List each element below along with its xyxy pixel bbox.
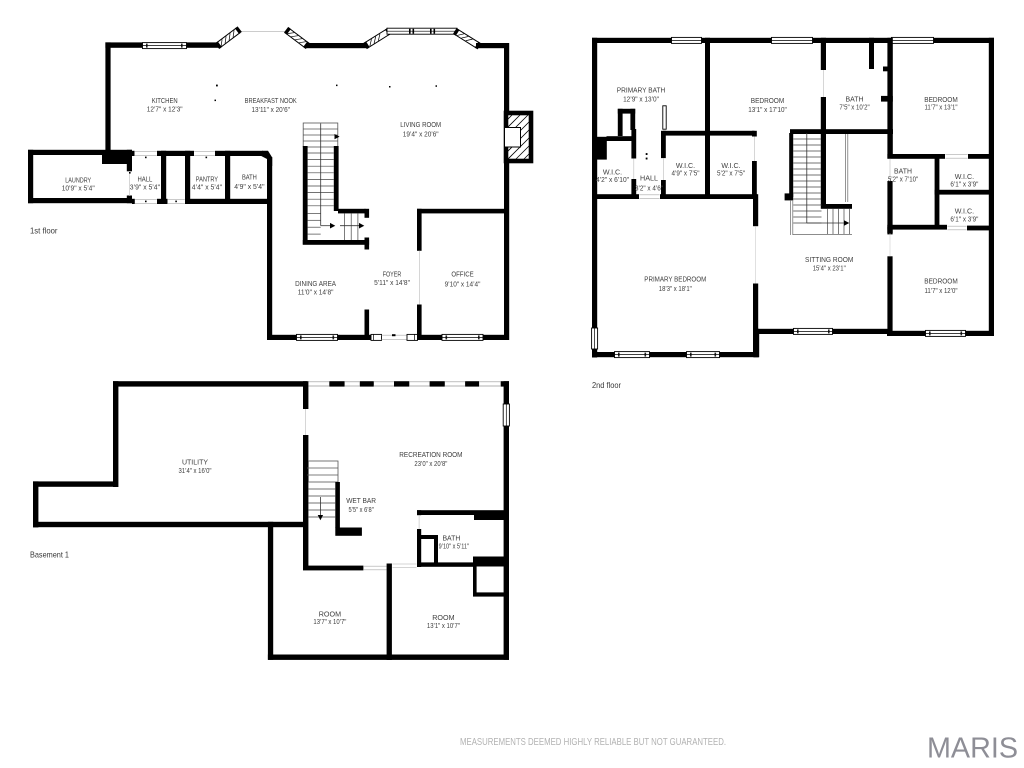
- svg-text:RECREATION ROOM: RECREATION ROOM: [399, 450, 462, 459]
- svg-text:12’9" x 13’0": 12’9" x 13’0": [623, 95, 659, 104]
- svg-text:5’11" x 14’8": 5’11" x 14’8": [374, 278, 410, 287]
- svg-text:13’1" x 17’10": 13’1" x 17’10": [748, 105, 787, 114]
- svg-text:LIVING ROOM: LIVING ROOM: [400, 120, 441, 129]
- svg-text:10’9" x 5’4": 10’9" x 5’4": [62, 184, 95, 193]
- svg-text:11’0" x 14’8": 11’0" x 14’8": [298, 288, 334, 297]
- svg-text:MEASUREMENTS DEEMED HIGHLY REL: MEASUREMENTS DEEMED HIGHLY RELIABLE BUT …: [460, 737, 726, 748]
- svg-text:23’0" x 20’8": 23’0" x 20’8": [414, 459, 447, 468]
- svg-text:3’9" x 5’4": 3’9" x 5’4": [130, 183, 161, 192]
- svg-text:6’1" x 3’9": 6’1" x 3’9": [950, 214, 978, 223]
- svg-text:19’4" x 20’6": 19’4" x 20’6": [403, 130, 439, 139]
- svg-text:13’7" x 10’7": 13’7" x 10’7": [313, 617, 346, 626]
- svg-text:UTILITY: UTILITY: [182, 457, 208, 466]
- svg-text:WET BAR: WET BAR: [346, 496, 376, 505]
- svg-text:OFFICE: OFFICE: [451, 270, 473, 279]
- svg-text:9’10" x 5’11": 9’10" x 5’11": [439, 541, 470, 550]
- svg-text:HALL: HALL: [640, 174, 658, 183]
- svg-text:SITTING ROOM: SITTING ROOM: [805, 255, 853, 264]
- svg-text:BEDROOM: BEDROOM: [751, 96, 785, 105]
- svg-text:6’1" x 3’9": 6’1" x 3’9": [950, 180, 978, 189]
- svg-text:5’5" x 6’8": 5’5" x 6’8": [348, 505, 374, 514]
- svg-text:15’4" x 23’1": 15’4" x 23’1": [813, 264, 846, 273]
- svg-text:1st floor: 1st floor: [30, 227, 58, 236]
- svg-text:4’4" x 5’4": 4’4" x 5’4": [192, 183, 223, 192]
- svg-text:3’2" x 4’6": 3’2" x 4’6": [635, 184, 663, 193]
- svg-text:9’10" x 14’4": 9’10" x 14’4": [445, 279, 481, 288]
- svg-text:MARIS: MARIS: [927, 733, 1018, 765]
- svg-text:PRIMARY BEDROOM: PRIMARY BEDROOM: [644, 274, 706, 283]
- svg-text:BREAKFAST NOOK: BREAKFAST NOOK: [245, 96, 297, 105]
- svg-text:31’4" x 16’0": 31’4" x 16’0": [179, 466, 212, 475]
- svg-text:4’2" x 6’10": 4’2" x 6’10": [596, 175, 629, 184]
- svg-text:5’2" x 7’5": 5’2" x 7’5": [717, 169, 745, 178]
- svg-text:11’7" x 12’0": 11’7" x 12’0": [925, 286, 958, 295]
- svg-text:5’2" x 7’10": 5’2" x 7’10": [888, 174, 919, 183]
- svg-text:18’3" x 18’1": 18’3" x 18’1": [659, 284, 692, 293]
- svg-text:BATH: BATH: [242, 173, 257, 182]
- svg-text:7’5" x 10’2": 7’5" x 10’2": [839, 102, 870, 111]
- svg-text:DINING AREA: DINING AREA: [295, 279, 336, 288]
- svg-text:13’1" x 10’7": 13’1" x 10’7": [427, 621, 460, 630]
- svg-text:4’9" x 5’4": 4’9" x 5’4": [234, 182, 265, 191]
- svg-text:4’9" x 7’5": 4’9" x 7’5": [672, 169, 700, 178]
- svg-text:12’7" x 12’3": 12’7" x 12’3": [147, 105, 183, 114]
- svg-text:BEDROOM: BEDROOM: [924, 277, 958, 286]
- svg-text:Basement 1: Basement 1: [30, 551, 69, 560]
- svg-text:2nd floor: 2nd floor: [592, 381, 621, 390]
- svg-text:PRIMARY BATH: PRIMARY BATH: [617, 86, 665, 95]
- svg-text:13’11" x 20’6": 13’11" x 20’6": [251, 105, 290, 114]
- svg-text:11’7" x 13’1": 11’7" x 13’1": [925, 103, 958, 112]
